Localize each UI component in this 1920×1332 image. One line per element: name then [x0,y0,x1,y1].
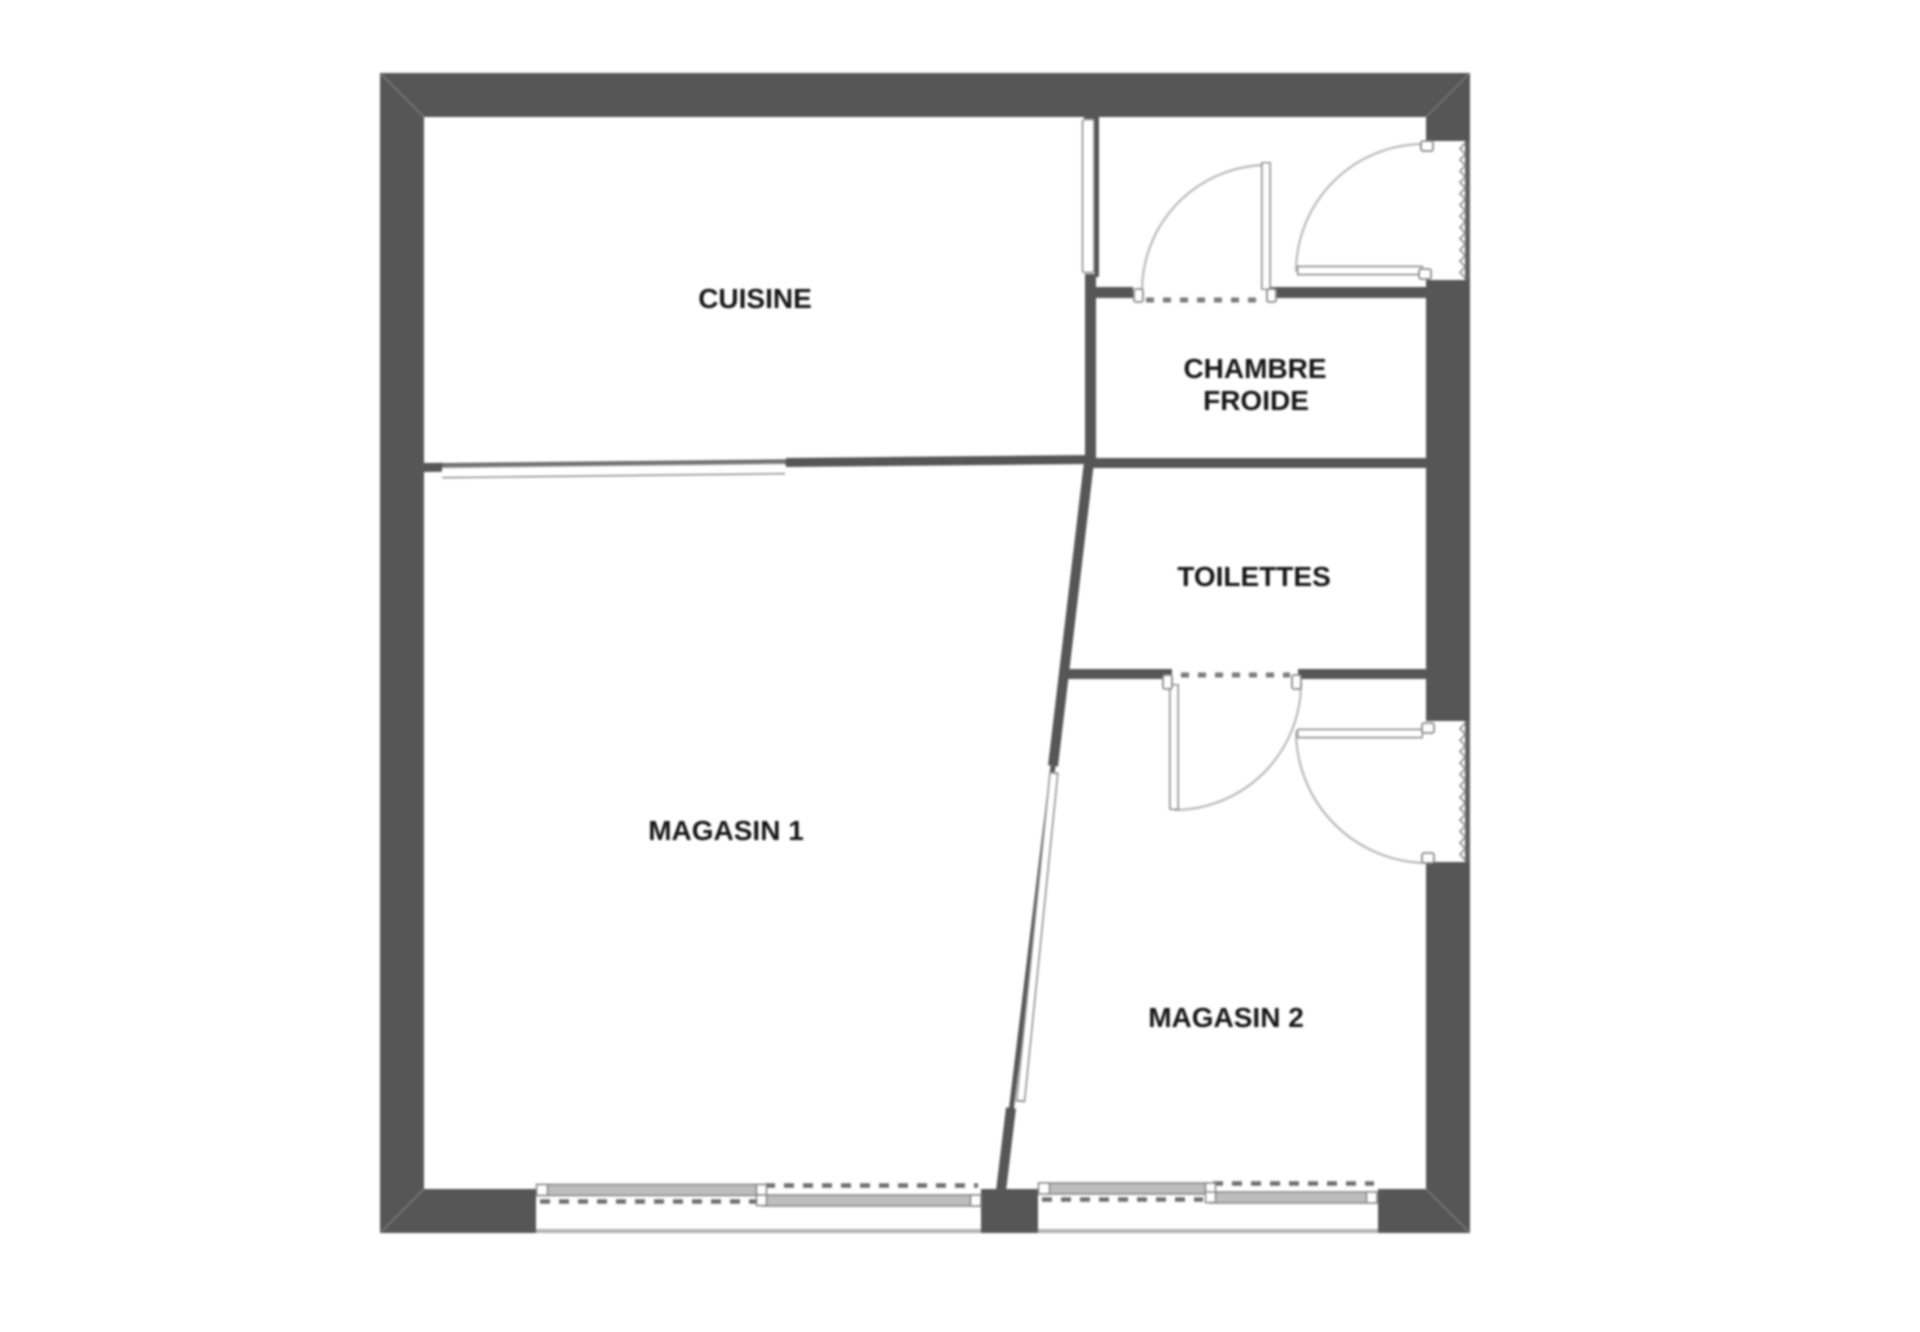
svg-text:TOILETTES: TOILETTES [1177,561,1331,592]
svg-text:MAGASIN 1: MAGASIN 1 [648,815,804,846]
svg-text:FROIDE: FROIDE [1203,385,1309,416]
svg-text:CHAMBRE: CHAMBRE [1183,353,1326,384]
svg-text:CUISINE: CUISINE [698,283,812,314]
svg-text:MAGASIN 2: MAGASIN 2 [1148,1002,1304,1033]
